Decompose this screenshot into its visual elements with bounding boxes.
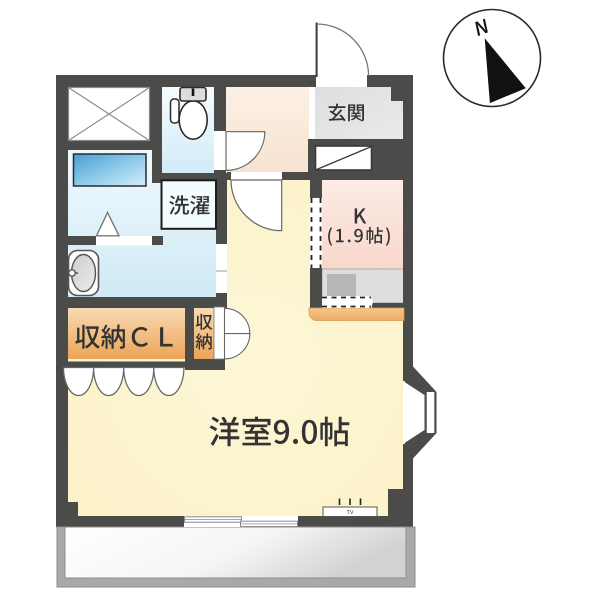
svg-text:TV: TV <box>346 510 353 516</box>
